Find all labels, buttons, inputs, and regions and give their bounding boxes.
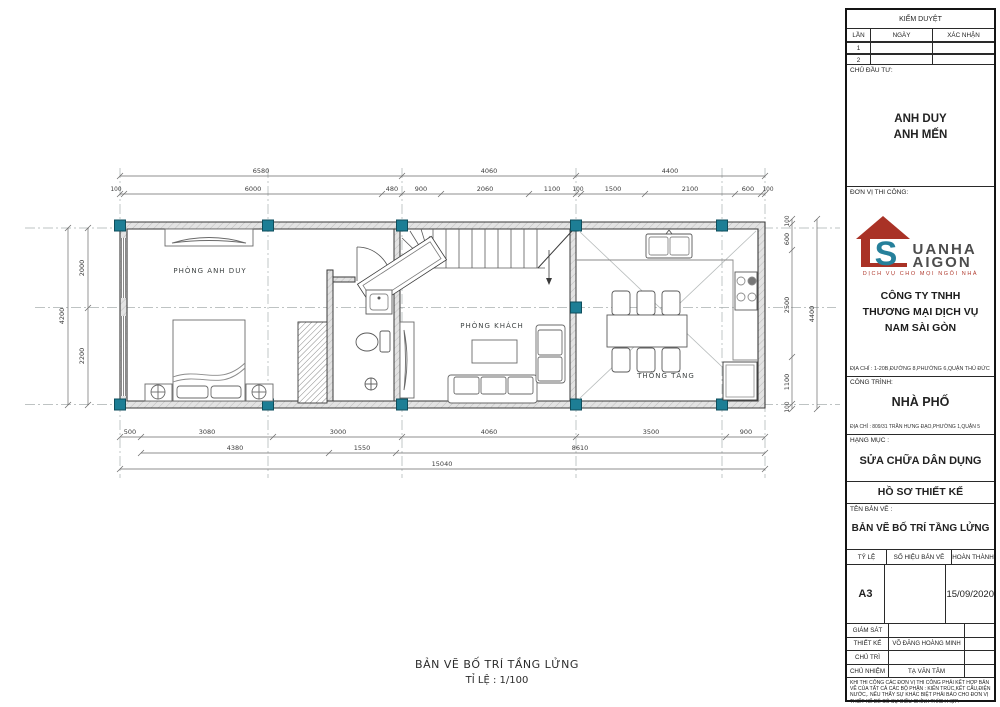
staff-label-giamsat: GIÁM SÁT bbox=[847, 624, 889, 637]
contractor-label: ĐƠN VỊ THI CÔNG: bbox=[850, 189, 908, 196]
window-symbol bbox=[121, 238, 126, 396]
project-address: ĐỊA CHỈ : 809/31 TRẦN HƯNG ĐẠO,PHƯỜNG 1,… bbox=[850, 424, 991, 431]
staff-label-chutri: CHỦ TRÌ bbox=[847, 651, 889, 664]
room-label-void: THÔNG TẦNG bbox=[636, 370, 695, 380]
project-section: CÔNG TRÌNH: NHÀ PHỐ ĐỊA CHỈ : 809/31 TRẦ… bbox=[847, 377, 994, 435]
chair bbox=[662, 291, 680, 315]
company-name-3: NAM SÀI GÒN bbox=[847, 320, 994, 336]
svg-text:900: 900 bbox=[415, 185, 427, 193]
logo-house-icon: S bbox=[855, 215, 911, 269]
investor-label: CHỦ ĐẦU TƯ: bbox=[850, 67, 893, 74]
svg-text:4400: 4400 bbox=[808, 306, 816, 323]
svg-text:600: 600 bbox=[783, 233, 791, 245]
approval-section: KIỂM DUYỆT LẦN NGÀY XÁC NHẬN 1 2 bbox=[847, 10, 994, 65]
svg-text:4060: 4060 bbox=[481, 428, 498, 436]
chair bbox=[637, 348, 655, 372]
approval-row-2: 2 bbox=[847, 55, 871, 65]
svg-text:S: S bbox=[874, 235, 897, 269]
investor-name-1: ANH DUY bbox=[847, 111, 994, 127]
drawing-name-section: TÊN BẢN VẼ : BẢN VẼ BỐ TRÍ TẦNG LỬNG bbox=[847, 504, 994, 550]
svg-text:100: 100 bbox=[110, 187, 121, 193]
company-name-1: CÔNG TY TNHH bbox=[847, 288, 994, 304]
investor-section: CHỦ ĐẦU TƯ: ANH DUY ANH MẾN bbox=[847, 65, 994, 187]
investor-name-2: ANH MẾN bbox=[847, 127, 994, 143]
col-lan: LẦN bbox=[847, 29, 871, 41]
contractor-section: ĐƠN VỊ THI CÔNG: S UANHA AIGON DỊCH VỤ C… bbox=[847, 187, 994, 377]
toilet-bowl bbox=[356, 333, 378, 351]
toilet-tank bbox=[380, 331, 390, 352]
svg-text:8610: 8610 bbox=[572, 444, 589, 452]
svg-text:100: 100 bbox=[572, 187, 583, 193]
plan-caption-scale: TỈ LỆ : 1/100 bbox=[465, 672, 529, 686]
project-name: NHÀ PHỐ bbox=[847, 395, 994, 409]
svg-text:2000: 2000 bbox=[78, 260, 86, 277]
staff-value-thietke: VÕ ĐĂNG HOÀNG MINH bbox=[889, 638, 965, 651]
pillow bbox=[177, 386, 208, 398]
wardrobe bbox=[298, 322, 327, 403]
logo-word-bottom: AIGON bbox=[913, 256, 977, 269]
svg-text:600: 600 bbox=[742, 185, 754, 193]
floor-plan-svg: PHÒNG ANH DUY PHÒNG KHÁCH THÔNG TẦNG bbox=[0, 0, 845, 707]
meta-scale-value: A3 bbox=[847, 565, 885, 623]
meta-scale-label: TỶ LỆ bbox=[847, 550, 887, 564]
drawing-name-value: BẢN VẼ BỐ TRÍ TẦNG LỬNG bbox=[847, 523, 994, 534]
meta-section: TỶ LỆ SỐ HIỆU BẢN VẼ HOÀN THÀNH A3 15/09… bbox=[847, 550, 994, 624]
room-label-living: PHÒNG KHÁCH bbox=[460, 321, 524, 330]
bathroom-fixtures bbox=[356, 290, 392, 390]
chair bbox=[637, 291, 655, 315]
svg-text:1500: 1500 bbox=[605, 185, 622, 193]
svg-text:6000: 6000 bbox=[245, 185, 262, 193]
svg-text:1550: 1550 bbox=[354, 444, 371, 452]
bedroom-furniture bbox=[145, 229, 327, 403]
category-value: SỬA CHỮA DÂN DỤNG bbox=[847, 455, 994, 467]
category-section: HẠNG MỤC : SỬA CHỮA DÂN DỤNG bbox=[847, 435, 994, 482]
plan-caption-title: BẢN VẼ BỐ TRÍ TẦNG LỬNG bbox=[415, 657, 579, 671]
svg-text:480: 480 bbox=[386, 185, 398, 193]
svg-text:900: 900 bbox=[740, 428, 752, 436]
svg-text:2500: 2500 bbox=[783, 297, 791, 314]
svg-text:2200: 2200 bbox=[78, 348, 86, 365]
svg-text:4400: 4400 bbox=[662, 167, 679, 175]
svg-text:4380: 4380 bbox=[227, 444, 244, 452]
drawing-sheet: PHÒNG ANH DUY PHÒNG KHÁCH THÔNG TẦNG bbox=[0, 0, 1000, 707]
svg-text:2100: 2100 bbox=[682, 185, 699, 193]
dossier-row: HỒ SƠ THIẾT KẾ bbox=[847, 482, 994, 504]
staff-label-chunhiem: CHỦ NHIỆM bbox=[847, 665, 889, 679]
room-label-bedroom: PHÒNG ANH DUY bbox=[173, 266, 246, 275]
pillow bbox=[211, 386, 241, 398]
svg-text:100: 100 bbox=[785, 401, 791, 412]
col-xacnhan: XÁC NHẬN bbox=[933, 29, 994, 41]
svg-text:15040: 15040 bbox=[432, 460, 453, 468]
svg-text:100: 100 bbox=[785, 215, 791, 226]
staff-section: GIÁM SÁT THIẾT KẾ VÕ ĐĂNG HOÀNG MINH CHỦ… bbox=[847, 624, 994, 678]
stair-direction-arrow bbox=[546, 278, 552, 285]
svg-text:1100: 1100 bbox=[783, 374, 791, 391]
svg-text:6580: 6580 bbox=[253, 167, 270, 175]
svg-text:500: 500 bbox=[124, 428, 136, 436]
note-section: KHI THI CÔNG CÁC ĐƠN VỊ THI CÔNG PHẢI KẾ… bbox=[847, 678, 994, 704]
approval-row-1: 1 bbox=[847, 43, 871, 53]
staff-value-chutri bbox=[889, 651, 965, 664]
meta-number-label: SỐ HIỆU BẢN VẼ bbox=[887, 550, 952, 564]
title-block: KIỂM DUYỆT LẦN NGÀY XÁC NHẬN 1 2 CHỦ ĐẦU… bbox=[845, 8, 996, 702]
svg-text:4060: 4060 bbox=[481, 167, 498, 175]
meta-complete-value: 15/09/2020 bbox=[946, 565, 994, 623]
chair bbox=[612, 291, 630, 315]
svg-text:1100: 1100 bbox=[544, 185, 561, 193]
meta-complete-label: HOÀN THÀNH bbox=[952, 550, 994, 564]
dining-furniture bbox=[607, 291, 687, 372]
staff-value-giamsat bbox=[889, 624, 965, 637]
company-logo: S UANHA AIGON DỊCH VỤ CHO MỌI NGÔI NHÀ bbox=[855, 215, 987, 277]
meta-number-value bbox=[885, 565, 947, 623]
svg-text:2060: 2060 bbox=[477, 185, 494, 193]
project-label: CÔNG TRÌNH: bbox=[850, 379, 893, 386]
svg-text:3080: 3080 bbox=[199, 428, 216, 436]
living-furniture bbox=[400, 322, 565, 403]
drawing-name-label: TÊN BẢN VẼ : bbox=[850, 506, 892, 513]
coffee-table bbox=[472, 340, 517, 363]
contractor-address: ĐỊA CHỈ : 1-20B,ĐƯỜNG 8,PHƯỜNG 6,QUẬN TH… bbox=[850, 366, 991, 373]
chair bbox=[662, 348, 680, 372]
dining-table bbox=[607, 315, 687, 347]
svg-text:3000: 3000 bbox=[330, 428, 347, 436]
svg-text:4200: 4200 bbox=[58, 308, 66, 325]
staff-label-thietke: THIẾT KẾ bbox=[847, 638, 889, 651]
col-ngay: NGÀY bbox=[871, 29, 933, 41]
grid-lines bbox=[25, 168, 840, 478]
svg-text:100: 100 bbox=[762, 187, 773, 193]
chair bbox=[612, 348, 630, 372]
category-label: HẠNG MỤC : bbox=[850, 437, 889, 444]
approval-title: KIỂM DUYỆT bbox=[847, 10, 994, 29]
company-name-2: THƯƠNG MẠI DỊCH VỤ bbox=[847, 304, 994, 320]
logo-tagline: DỊCH VỤ CHO MỌI NGÔI NHÀ bbox=[855, 271, 987, 277]
svg-text:3500: 3500 bbox=[643, 428, 660, 436]
staff-value-chunhiem: TẠ VĂN TÂM bbox=[889, 665, 965, 679]
dimension-labels: 6580 4060 4400 100 6000 480 900 2060 110… bbox=[58, 167, 816, 468]
